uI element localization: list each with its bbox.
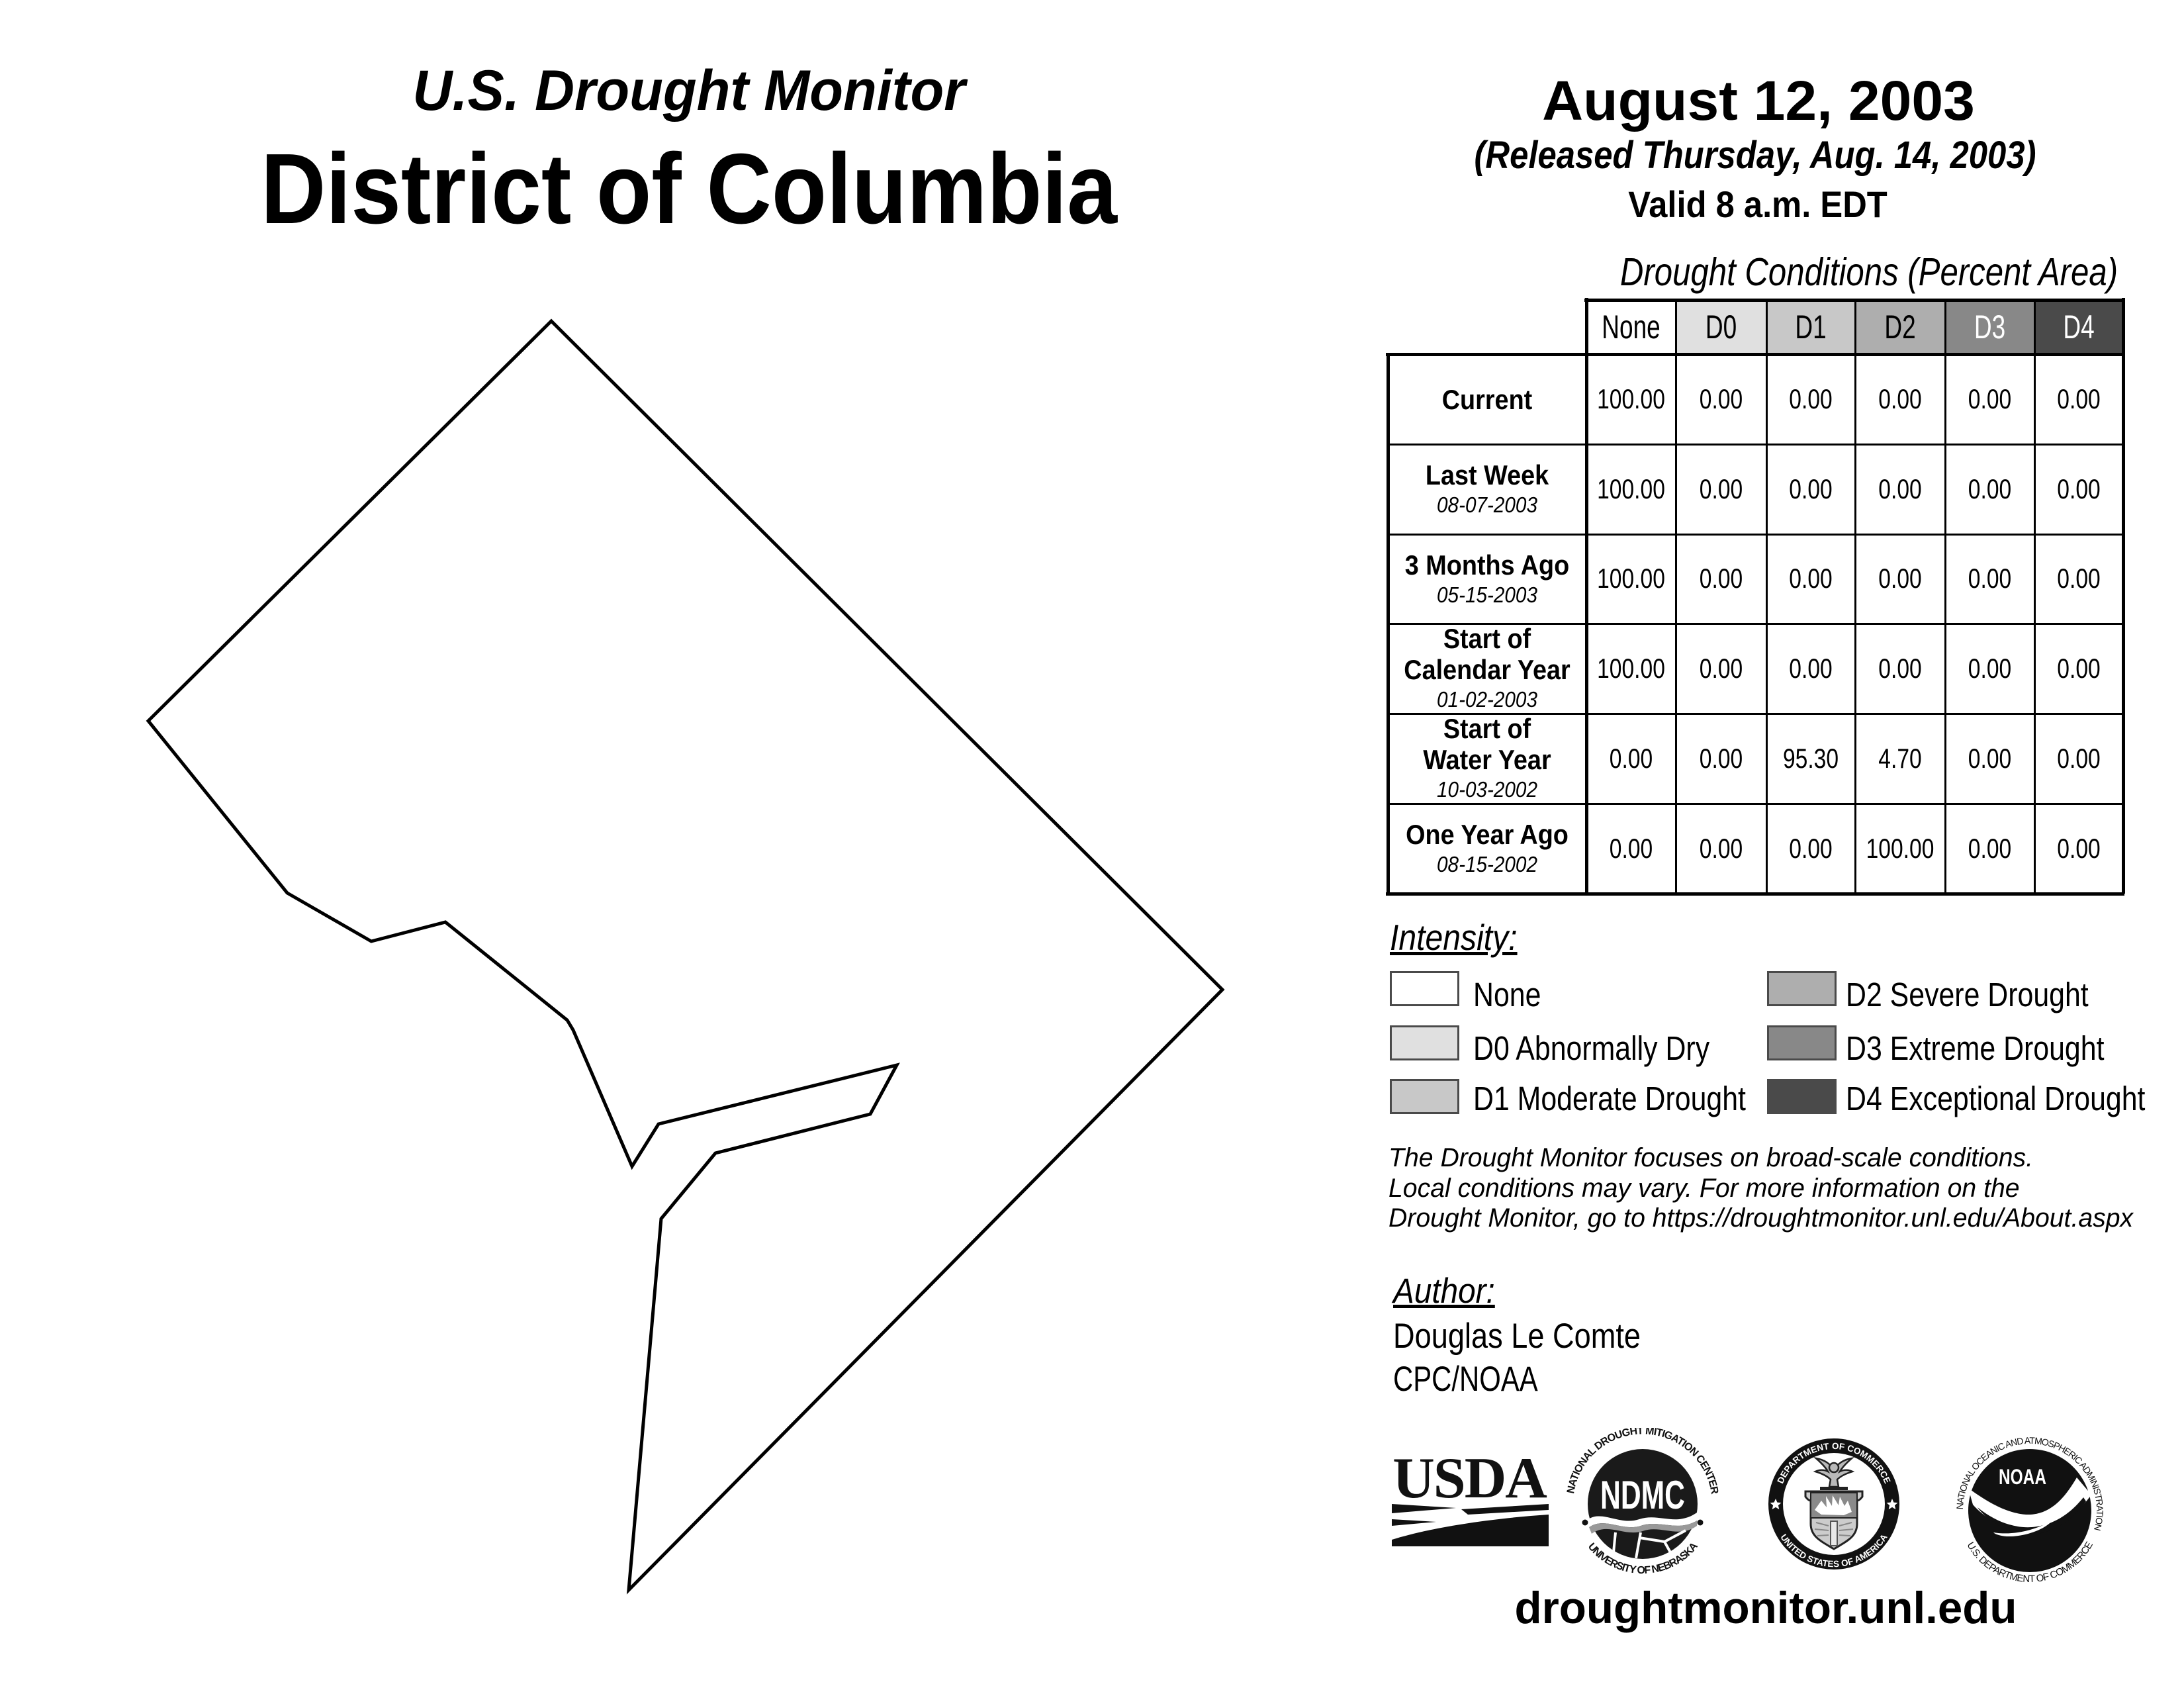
svg-text:NDMC: NDMC <box>1600 1473 1685 1517</box>
svg-text:USDA: USDA <box>1392 1454 1547 1511</box>
svg-text:NOAA: NOAA <box>1999 1465 2046 1489</box>
